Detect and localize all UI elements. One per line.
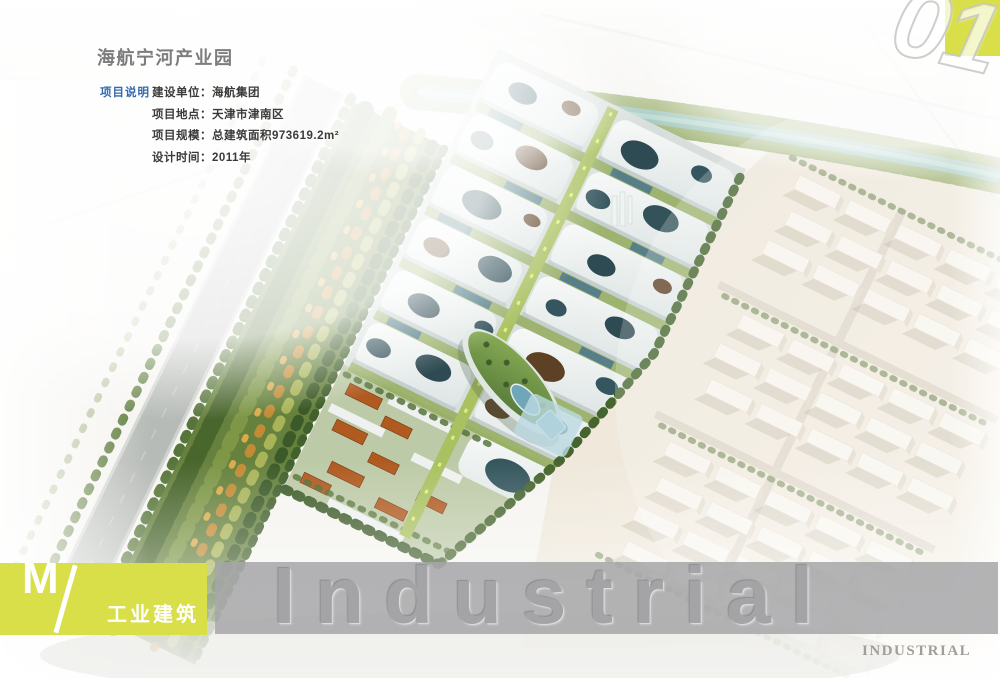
project-info: 建设单位：海航集团 项目地点：天津市津南区 项目规模：总建筑面积973619.2… [152, 84, 339, 170]
info-row-location: 项目地点：天津市津南区 [152, 106, 339, 128]
info-row-scale: 项目规模：总建筑面积973619.2m² [152, 127, 339, 149]
badge-letter: M [22, 554, 59, 604]
project-info-label: 项目说明 [100, 84, 150, 100]
portfolio-page: 海航宁河产业园 项目说明 建设单位：海航集团 项目地点：天津市津南区 项目规模：… [0, 0, 1000, 678]
info-row-year: 设计时间：2011年 [152, 149, 339, 171]
watermark-text: Industrial [273, 562, 833, 634]
page-title: 海航宁河产业园 [97, 44, 234, 70]
info-row-builder: 建设单位：海航集团 [152, 84, 339, 106]
chimney-stacks [612, 192, 632, 226]
category-badge: M 工业建筑 [0, 563, 207, 635]
watermark-band: Industrial [215, 562, 998, 634]
badge-label: 工业建筑 [107, 598, 199, 627]
footer-text: INDUSTRIAL [862, 643, 971, 660]
